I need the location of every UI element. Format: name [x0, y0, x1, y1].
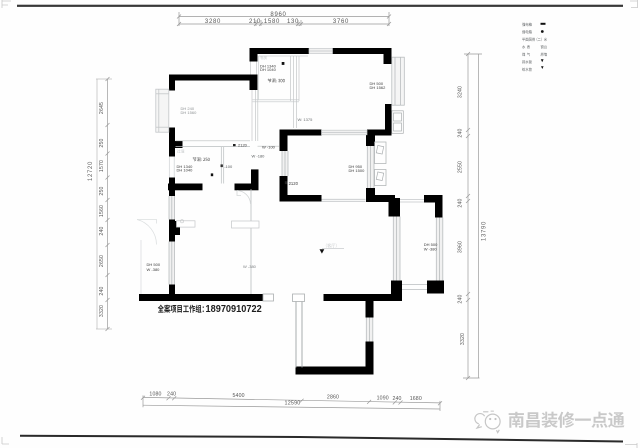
svg-text:1560: 1560 [99, 205, 105, 217]
svg-text:240: 240 [458, 128, 464, 137]
svg-text:210: 210 [249, 19, 261, 25]
svg-text:DH 1500: DH 1500 [349, 168, 366, 173]
svg-text:W -180: W -180 [252, 154, 266, 159]
svg-text:240: 240 [167, 392, 176, 398]
svg-text:12590: 12590 [285, 400, 301, 406]
svg-text:250: 250 [99, 138, 105, 147]
svg-text:240: 240 [99, 286, 105, 295]
svg-text:5400: 5400 [233, 393, 245, 399]
svg-text:1090: 1090 [377, 396, 389, 402]
svg-text:3320: 3320 [99, 305, 105, 317]
svg-text:1080: 1080 [149, 391, 161, 397]
svg-text:W: 1375: W: 1375 [298, 117, 314, 122]
svg-text:-100: -100 [224, 164, 233, 169]
svg-text:DH 1560: DH 1560 [181, 110, 198, 115]
svg-text:2120: 2120 [238, 143, 248, 148]
svg-text:250: 250 [99, 186, 105, 195]
svg-text:3960: 3960 [458, 241, 464, 253]
svg-text:3760: 3760 [333, 19, 349, 25]
svg-text:240: 240 [458, 198, 464, 207]
svg-text:2550: 2550 [458, 161, 464, 173]
svg-text:W -380: W -380 [147, 267, 161, 272]
svg-text:13790: 13790 [482, 221, 488, 241]
svg-text:2860: 2860 [327, 395, 339, 401]
svg-text:1580: 1580 [264, 19, 280, 25]
svg-text:1680: 1680 [410, 396, 422, 402]
svg-text:12720: 12720 [88, 161, 94, 181]
svg-text:3320: 3320 [460, 333, 466, 345]
svg-text:W -380: W -380 [243, 264, 257, 269]
svg-text:2645: 2645 [99, 102, 105, 114]
svg-text:DH 1040: DH 1040 [260, 67, 277, 72]
svg-text:W -380: W -380 [424, 247, 438, 252]
svg-text:240: 240 [458, 294, 464, 303]
svg-text:3280: 3280 [205, 19, 221, 25]
svg-text:DH 1040: DH 1040 [177, 168, 194, 173]
svg-text:2650: 2650 [99, 255, 105, 267]
svg-text:2120: 2120 [289, 181, 299, 186]
svg-text:8960: 8960 [270, 12, 286, 18]
svg-text:240: 240 [392, 396, 401, 402]
svg-text:130: 130 [287, 19, 299, 25]
svg-text:DH 1562: DH 1562 [370, 85, 387, 90]
svg-text:W -100: W -100 [262, 145, 276, 150]
svg-text:3240: 3240 [458, 86, 464, 98]
svg-text:1570: 1570 [99, 160, 105, 172]
svg-text:240: 240 [99, 226, 105, 235]
svg-text:18970910722: 18970910722 [206, 304, 262, 315]
